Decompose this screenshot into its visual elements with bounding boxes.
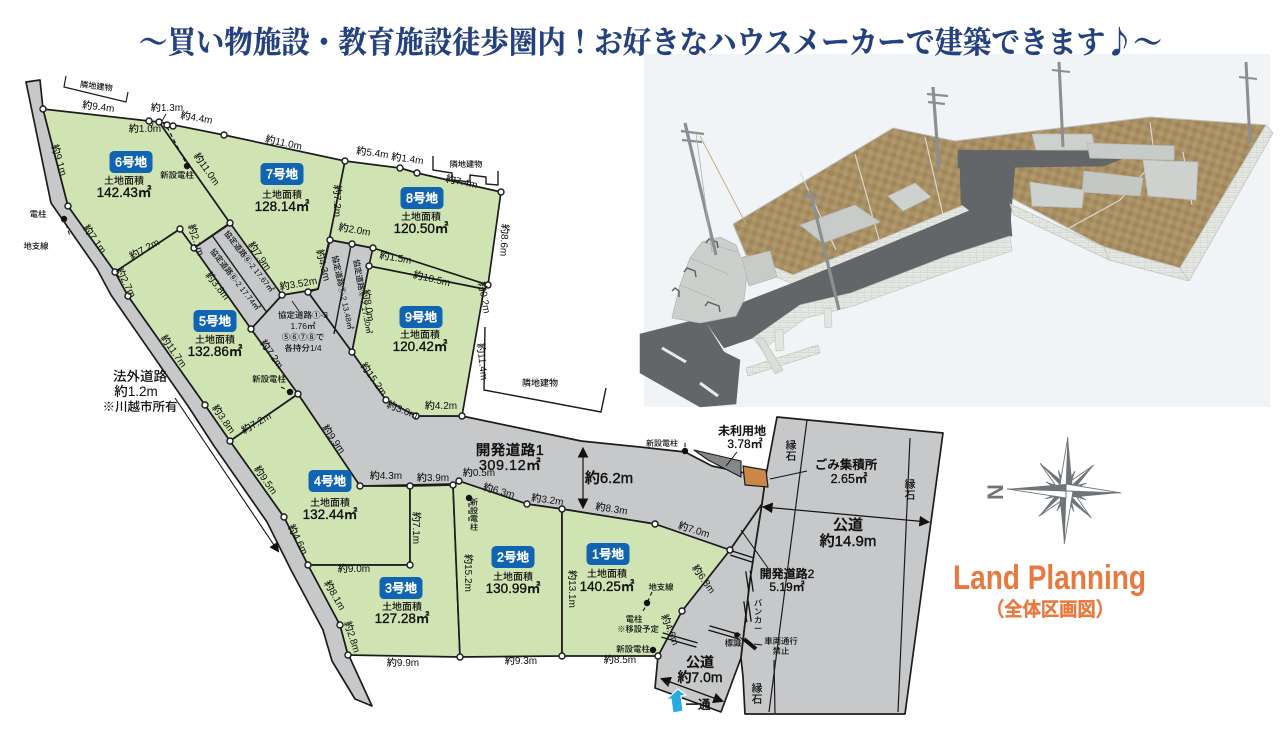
- svg-text:120.42㎡: 120.42㎡: [393, 335, 448, 355]
- svg-text:2号地: 2号地: [497, 547, 529, 566]
- svg-text:約1.3m: 約1.3m: [151, 99, 183, 114]
- svg-text:新設電柱: 新設電柱: [616, 643, 650, 655]
- svg-text:※川越市所有: ※川越市所有: [102, 396, 177, 415]
- svg-text:約14.9m: 約14.9m: [820, 530, 877, 551]
- svg-text:約3.9m: 約3.9m: [417, 469, 449, 484]
- svg-text:132.44㎡: 132.44㎡: [303, 503, 358, 523]
- svg-text:約7.0m: 約7.0m: [677, 667, 722, 687]
- svg-text:142.43㎡: 142.43㎡: [97, 181, 152, 201]
- svg-text:N: N: [983, 484, 1008, 500]
- svg-text:新設電柱: 新設電柱: [252, 373, 286, 385]
- svg-text:3.78㎡: 3.78㎡: [727, 435, 762, 452]
- svg-text:約9.3m: 約9.3m: [505, 652, 537, 667]
- svg-text:隣地建物: 隣地建物: [522, 376, 558, 389]
- svg-text:石: 石: [905, 487, 916, 503]
- svg-text:8号地: 8号地: [406, 188, 438, 207]
- svg-text:140.25㎡: 140.25㎡: [580, 575, 635, 595]
- svg-text:5.19㎡: 5.19㎡: [769, 578, 804, 595]
- svg-text:一通: 一通: [685, 694, 711, 713]
- svg-text:120.50㎡: 120.50㎡: [394, 217, 449, 237]
- svg-text:Land Planning: Land Planning: [953, 559, 1146, 597]
- svg-text:1号地: 1号地: [592, 544, 624, 563]
- svg-text:約13.1m: 約13.1m: [566, 570, 581, 608]
- svg-text:約8.6m: 約8.6m: [497, 224, 514, 257]
- svg-text:約9.0m: 約9.0m: [338, 560, 370, 575]
- svg-text:新設電柱: 新設電柱: [646, 438, 678, 449]
- svg-text:約4.3m: 約4.3m: [370, 467, 402, 482]
- svg-text:ー: ー: [754, 623, 762, 635]
- svg-text:約7.2m: 約7.2m: [331, 185, 346, 217]
- svg-text:約1.0m: 約1.0m: [129, 120, 161, 135]
- svg-text:禁止: 禁止: [773, 645, 790, 657]
- svg-text:約15.2m: 約15.2m: [462, 554, 477, 592]
- svg-text:5号地: 5号地: [199, 311, 231, 330]
- svg-text:新設電柱: 新設電柱: [160, 169, 194, 181]
- svg-text:9号地: 9号地: [405, 307, 437, 326]
- svg-text:石: 石: [752, 691, 763, 707]
- svg-text:約9.9m: 約9.9m: [387, 654, 419, 669]
- svg-text:132.86㎡: 132.86㎡: [188, 340, 243, 360]
- svg-text:※移設予定: ※移設予定: [617, 623, 659, 635]
- svg-text:127.28㎡: 127.28㎡: [375, 607, 430, 627]
- svg-text:4号地: 4号地: [314, 471, 346, 490]
- svg-text:隣地建物: 隣地建物: [450, 158, 483, 170]
- svg-text:（全体区画図）: （全体区画図）: [986, 593, 1114, 622]
- svg-text:128.14㎡: 128.14㎡: [255, 195, 310, 215]
- svg-text:約7.1m: 約7.1m: [410, 512, 425, 544]
- svg-text:約4.2m: 約4.2m: [425, 397, 457, 412]
- svg-text:各持分1/4: 各持分1/4: [284, 342, 322, 354]
- svg-text:309.12㎡: 309.12㎡: [479, 454, 541, 475]
- svg-text:130.99㎡: 130.99㎡: [486, 577, 541, 597]
- svg-text:地支線: 地支線: [648, 581, 674, 593]
- svg-text:電柱: 電柱: [30, 208, 47, 220]
- svg-text:2.65㎡: 2.65㎡: [831, 468, 868, 487]
- svg-text:6号地: 6号地: [115, 152, 147, 171]
- svg-text:7号地: 7号地: [266, 164, 298, 183]
- svg-text:～買い物施設・教育施設徒歩圏内！お好きなハウスメーカーで建築: ～買い物施設・教育施設徒歩圏内！お好きなハウスメーカーで建築できます♪～: [139, 17, 1162, 62]
- svg-text:3号地: 3号地: [385, 578, 417, 597]
- svg-text:柱: 柱: [470, 521, 478, 533]
- svg-text:約6.2m: 約6.2m: [585, 467, 633, 488]
- svg-text:地支線: 地支線: [23, 240, 49, 252]
- svg-text:石: 石: [786, 448, 797, 464]
